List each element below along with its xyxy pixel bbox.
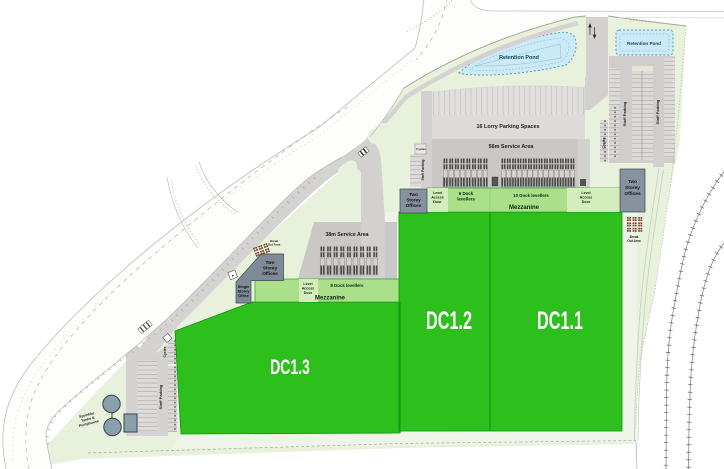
svg-text:Access: Access bbox=[431, 196, 444, 200]
svg-text:Staff Parking: Staff Parking bbox=[421, 160, 425, 181]
svg-text:8 Dock levellers: 8 Dock levellers bbox=[330, 283, 364, 288]
svg-text:Cycles: Cycles bbox=[416, 147, 426, 151]
svg-text:levellers: levellers bbox=[457, 197, 475, 202]
svg-text:Level: Level bbox=[303, 282, 312, 286]
svg-text:DC1.3: DC1.3 bbox=[270, 355, 310, 379]
svg-text:16 Lorry Parking Spaces: 16 Lorry Parking Spaces bbox=[477, 124, 540, 130]
svg-text:10 Dock levellers: 10 Dock levellers bbox=[513, 193, 549, 198]
svg-text:Retention Pond: Retention Pond bbox=[627, 41, 661, 46]
svg-text:Offices: Offices bbox=[262, 271, 278, 276]
svg-text:DC1.1: DC1.1 bbox=[537, 308, 583, 335]
svg-text:Office: Office bbox=[238, 294, 249, 298]
svg-text:Offices: Offices bbox=[406, 203, 422, 208]
svg-text:Storey: Storey bbox=[406, 198, 421, 203]
svg-text:Cycles: Cycles bbox=[163, 346, 167, 357]
svg-text:Two: Two bbox=[409, 192, 418, 197]
svg-text:Staff Parking: Staff Parking bbox=[158, 384, 163, 409]
svg-text:6 Dock: 6 Dock bbox=[459, 191, 474, 196]
svg-text:DC1.2: DC1.2 bbox=[426, 308, 472, 335]
svg-text:Out Area: Out Area bbox=[627, 239, 641, 243]
svg-text:Storey: Storey bbox=[238, 290, 251, 294]
svg-text:Staff Parking: Staff Parking bbox=[655, 99, 660, 124]
svg-text:Cycles: Cycles bbox=[602, 137, 606, 148]
svg-text:Mezzanine: Mezzanine bbox=[509, 205, 540, 211]
svg-text:Out Area: Out Area bbox=[268, 243, 281, 247]
svg-text:Access: Access bbox=[580, 196, 593, 200]
svg-text:Level: Level bbox=[581, 191, 590, 195]
svg-text:Staff Parking: Staff Parking bbox=[622, 101, 627, 126]
svg-text:Access: Access bbox=[302, 287, 315, 291]
svg-text:Storey: Storey bbox=[625, 185, 640, 191]
svg-text:Door: Door bbox=[582, 200, 591, 204]
svg-text:Mezzanine: Mezzanine bbox=[315, 296, 346, 302]
svg-text:Level: Level bbox=[433, 191, 442, 195]
svg-text:Two: Two bbox=[628, 179, 637, 185]
svg-text:Retention Pond: Retention Pond bbox=[499, 55, 539, 61]
svg-text:Single: Single bbox=[238, 285, 249, 289]
svg-text:Offices: Offices bbox=[624, 191, 641, 197]
svg-text:56m Service Area: 56m Service Area bbox=[489, 144, 535, 150]
svg-text:Door: Door bbox=[433, 200, 442, 204]
svg-text:38m Service Area: 38m Service Area bbox=[325, 232, 368, 238]
svg-text:Storey: Storey bbox=[263, 266, 278, 271]
svg-text:Two: Two bbox=[266, 260, 275, 265]
svg-text:Door: Door bbox=[304, 291, 313, 295]
